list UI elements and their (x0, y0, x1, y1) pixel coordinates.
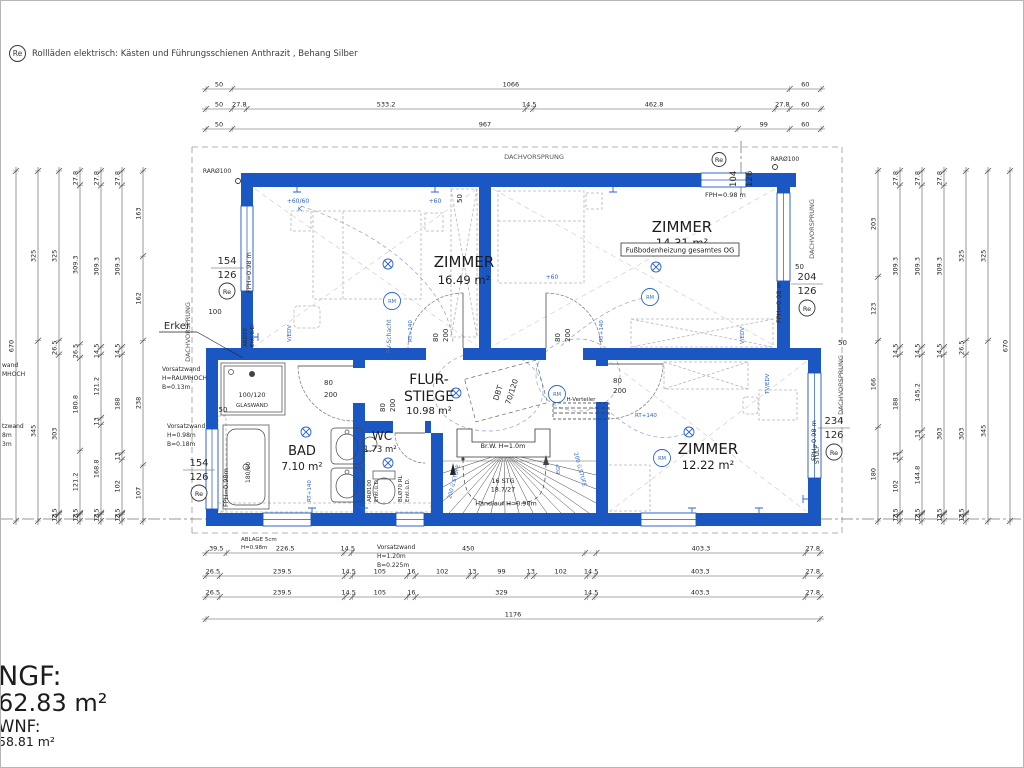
dimension-label: 345 (30, 425, 38, 437)
annotation-stufe: 200 ü.STUFE (447, 464, 462, 500)
dbt-box (465, 360, 548, 422)
dimension-label: 13 (468, 568, 476, 576)
annotation-frag2: MHOCH (2, 371, 25, 378)
dimension-label: 14.5 (522, 101, 536, 109)
annotation-w: 80 (613, 377, 622, 385)
dimension-label: 162 (135, 292, 143, 304)
annotation-rm: RM (553, 392, 561, 398)
dimension-label: 13 (914, 513, 922, 521)
annotation-rt140: RT+140 (307, 480, 313, 502)
annotation-fph: FPH=0.98 m (245, 252, 253, 293)
annotation-rm: RM (388, 299, 396, 305)
dimension-label: 303 (936, 428, 944, 440)
annotation-dachvorsprung: DACHVORSPRUNG (504, 153, 564, 161)
annotation-bl70_1: BLØ70 RL (397, 474, 404, 502)
annotation-vw1_1: Vorsatzwand (162, 366, 200, 373)
dimension-label: 188 (114, 398, 122, 410)
annotation-fph_m: FPH=0.98m (222, 468, 230, 507)
dimension-label: 14.5 (341, 568, 355, 576)
annotation-vw1_2: H=RAUMHOCH (162, 375, 207, 382)
dimension-label: 14.5 (914, 344, 922, 358)
dimension-label: 13 (51, 513, 59, 521)
dimension-chain: 27.8309.314.5188131022.513 (892, 167, 904, 525)
annotation-egf: EGF (556, 464, 562, 474)
dimension-label: 403.3 (691, 589, 710, 597)
annotation-hvert: H-Verteiler (566, 397, 596, 403)
dimension-label: 670 (8, 340, 16, 352)
annotation-entl: Entl.ü.D. (250, 323, 256, 347)
dimension-label: 1176 (505, 611, 522, 619)
dimension-label: 107 (135, 487, 143, 499)
dimension-label: 26.5 (206, 589, 220, 597)
room-bad-area: 7.10 m² (281, 461, 322, 473)
dimension-label: 309.3 (936, 257, 944, 276)
dimension-label: 50 (215, 81, 223, 89)
dimension-chain: 163162238107 (135, 167, 147, 525)
dimension-label: 13 (936, 513, 944, 521)
dimension-label: 27.8 (806, 568, 820, 576)
annotation-win_se_a: 234 (824, 416, 843, 427)
annotation-re: Re (715, 156, 723, 164)
annotation-rm: RM (658, 456, 666, 462)
annotation-re: Re (830, 449, 838, 457)
annotation-stulp: STULP (814, 445, 821, 464)
dimension-chain: 325345 (980, 167, 992, 525)
dimension-label: 309.3 (914, 257, 922, 276)
annotation-win_se_b: 126 (824, 430, 843, 441)
dimension-label: 14.5 (584, 589, 598, 597)
annotation-vedv: V/EDV (287, 325, 293, 342)
dimension-label: 60 (801, 81, 809, 89)
dimension-label: 99 (760, 121, 768, 129)
annotation-frag3: tzwand (2, 423, 24, 430)
annotation-rt140: RT+140 (599, 320, 605, 342)
wiring-curves (301, 206, 684, 437)
annotation-dbt: DBT (491, 384, 504, 402)
annotation-fph: FPH=0.98 m (705, 191, 746, 199)
dimension-label: 27.8 (914, 171, 922, 185)
annotation-win_top_b: 126 (745, 171, 755, 187)
dimension-label: 309.3 (114, 257, 122, 276)
annotation-h: 200 (389, 399, 397, 412)
dimension-label: 309.3 (892, 257, 900, 276)
dimension-label: 13 (527, 568, 535, 576)
ngf-label: NGF: (0, 663, 107, 691)
annotation-vw1_3: B=0.13m (162, 384, 191, 391)
dimension-label: 27.8 (93, 171, 101, 185)
annotation-win_top_a: 104 (729, 171, 739, 187)
dimension-label: 180.8 (72, 395, 80, 414)
room-zimmer-nw-name: ZIMMER (434, 253, 494, 271)
dimension-chain: 27.8309.326.5180.8121.22.513 (72, 167, 84, 525)
dimension-label: 27.8 (775, 101, 789, 109)
annotation-plus60: +60 (429, 198, 442, 205)
annotation-rm: RM (646, 295, 654, 301)
annotation-rar: RARØ100 (203, 168, 232, 175)
dimension-label: 105 (374, 589, 386, 597)
annotation-w: 80 (554, 333, 562, 342)
dimension-chain: 670 (8, 167, 20, 525)
annotation-win_sw_b: 126 (189, 472, 208, 483)
dimension-chain: 39.5226.514.5450403.327.8 (202, 545, 824, 557)
dimension-label: 102 (436, 568, 448, 576)
annotation-shower_size: 100/120 (238, 391, 265, 399)
annotation-w: 80 (379, 403, 387, 412)
dimension-label: 309.3 (93, 257, 101, 276)
dimension-label: 27.8 (114, 171, 122, 185)
stair-ratio-label: 18.7/27 (491, 486, 516, 494)
stair-handrail-label: Handlauf H=0.90m (475, 500, 536, 508)
annotation-frag4: 8m (2, 432, 12, 439)
wnf-value: 58.81 m² (0, 735, 107, 748)
dimension-label: 325 (51, 250, 59, 262)
dimension-label: 27.8 (72, 171, 80, 185)
room-bad-name: BAD (288, 444, 316, 459)
dimension-chain: 203123166180 (870, 167, 882, 525)
dimension-label: 403.3 (691, 568, 710, 576)
dimension-label: 188 (892, 398, 900, 410)
dimension-label: 27.8 (806, 589, 820, 597)
annotation-vedv: V/EDV (740, 327, 746, 344)
dimension-label: 168.8 (93, 460, 101, 479)
stair-parapet-label: Br.W. H=1.0m (481, 442, 526, 450)
area-summary: NGF: 62.83 m² WNF: 58.81 m² (0, 663, 107, 748)
dimension-label: 39.5 (209, 545, 223, 553)
annotation-tvedv: TV/EDV (765, 373, 771, 395)
annotation-vw3_2: H=1.20m (377, 553, 406, 560)
dimension-label: 13 (892, 452, 900, 460)
annotation-h: 200 (442, 329, 450, 342)
dimension-label: 203 (870, 218, 878, 230)
dimension-label: 27.8 (232, 101, 246, 109)
annotation-rt140: RT+140 (408, 320, 414, 342)
annotation-frag1: wand (2, 362, 18, 369)
annotation-dachvorsprung: DACHVORSPRUNG (837, 355, 845, 415)
dimension-chain: 50106660 (202, 81, 825, 93)
dimension-label: 303 (958, 428, 966, 440)
annotation-win_ne_a: 204 (797, 272, 816, 283)
room-wc-area: 1.73 m² (363, 445, 396, 455)
floorplan-page: Re Rollläden elektrisch: Kästen und Führ… (0, 0, 1024, 768)
dimension-label: 16 (407, 589, 415, 597)
dimension-label: 180 (870, 468, 878, 480)
dimension-label: 102 (555, 568, 567, 576)
dimension-label: 26.5 (51, 340, 59, 354)
dimension-label: 329 (495, 589, 507, 597)
dimension-chain: 5027.8533.214.5462.827.860 (202, 101, 825, 113)
room-flur-name1: FLUR- (409, 372, 449, 388)
room-wc-name: WC (372, 429, 392, 443)
dimension-label: 403.3 (692, 545, 711, 553)
annotation-frag5: 3m (2, 441, 12, 448)
dimension-label: 163 (135, 207, 143, 219)
stair-count-label: 16 STG (491, 477, 514, 485)
annotation-h: 200 (324, 391, 337, 399)
annotation-ar100_1: ARØ100 (366, 479, 373, 502)
annotation-d50: 50 (456, 194, 464, 203)
dimension-chain: 670 (1002, 167, 1014, 525)
dimension-label: 462.8 (645, 101, 664, 109)
dimension-label: 14.5 (114, 344, 122, 358)
dimension-label: 26.5 (206, 568, 220, 576)
dimension-label: 13 (914, 430, 922, 438)
annotation-re: Re (195, 490, 203, 498)
annotation-d50: 50 (219, 406, 228, 414)
annotation-entl: Entl.ü.D. (374, 478, 380, 502)
annotation-erker: Erker (164, 321, 191, 332)
annotation-d50: 50 (838, 339, 847, 347)
dimension-label: 121.2 (72, 473, 80, 492)
dimension-label: 13 (958, 513, 966, 521)
dimension-label: 123 (870, 303, 878, 315)
annotation-vw3_3: B=0.225m (377, 562, 409, 569)
dimension-label: 14.5 (93, 344, 101, 358)
annotation-win_sw_a: 154 (189, 458, 208, 469)
wnf-label: WNF: (0, 718, 107, 735)
annotation-ar70_1: ARØ70 (242, 328, 249, 347)
annotation-fph: FPH=0.98 m (775, 282, 783, 323)
annotation-win_nw_b: 126 (217, 270, 236, 281)
dimension-chain: 509679960 (202, 121, 825, 133)
dimension-chain: 32526.53032.513 (958, 167, 970, 525)
room-zimmer-ne-name: ZIMMER (652, 218, 712, 236)
label-leader-lines (183, 268, 850, 470)
dimension-label: 14.5 (584, 568, 598, 576)
room-flur-name2: STIEGE (404, 389, 454, 405)
room-zimmer-se-name: ZIMMER (678, 440, 738, 458)
dimension-label: 239.5 (273, 589, 292, 597)
fbh-note-text: Fußbodenheizung gesamtes OG (626, 247, 734, 255)
annotation-plus6060: +60/60 (287, 198, 310, 205)
annotation-h: 200 (613, 387, 626, 395)
dimension-label: 13 (93, 513, 101, 521)
dimension-chain: 1176 (202, 611, 824, 623)
dimension-label: 50 (215, 101, 223, 109)
annotation-vw2_2: H=0.98m (167, 432, 196, 439)
room-flur-area: 10.98 m² (406, 406, 452, 417)
dimension-label: 1066 (503, 81, 520, 89)
annotation-plus60: +60 (546, 274, 559, 281)
dimension-label: 345 (980, 425, 988, 437)
annotation-d100: 100 (208, 308, 221, 316)
annotation-rt140: RT+140 (635, 413, 657, 419)
dimension-label: 309.3 (72, 255, 80, 274)
dimension-chain: 27.8309.314.5188131022.513 (114, 167, 126, 525)
annotation-re: Re (803, 305, 811, 313)
dimension-label: 99 (497, 568, 505, 576)
annotation-d50: 50 (795, 263, 804, 271)
dimension-label: 13 (114, 452, 122, 460)
dimension-label: 13 (72, 514, 80, 522)
room-zimmer-se-area: 12.22 m² (682, 458, 734, 472)
dimension-chain: 27.8309.314.53032.513 (936, 167, 948, 525)
dimension-label: 27.8 (806, 545, 820, 553)
annotation-tub_size: 180/80 (245, 462, 252, 483)
dimension-label: 238 (135, 397, 143, 409)
annotation-w: 80 (324, 379, 333, 387)
annotation-dbt_size: 70/120 (503, 378, 520, 406)
dimension-label: 14.5 (936, 344, 944, 358)
dimension-label: 14.5 (341, 545, 355, 553)
dimension-label: 533.2 (377, 101, 396, 109)
dimension-label: 60 (801, 121, 809, 129)
dimension-label: 13 (892, 513, 900, 521)
dimension-label: 967 (479, 121, 491, 129)
annotation-rar: RARØ100 (771, 156, 800, 163)
ngf-value: 62.83 m² (0, 691, 107, 716)
dimension-label: 450 (462, 545, 474, 553)
room-zimmer-nw-area: 16.49 m² (438, 273, 490, 287)
dimension-label: 325 (30, 250, 38, 262)
dimension-label: 145.2 (914, 383, 922, 402)
annotation-w: 80 (432, 333, 440, 342)
annotation-win_nw_a: 154 (217, 256, 236, 267)
dimension-label: 26.5 (72, 344, 80, 358)
dimension-label: 14.5 (341, 589, 355, 597)
dimension-label: 50 (215, 121, 223, 129)
dimension-chain: 325345 (30, 167, 42, 525)
annotation-entl: Entl.ü.D. (405, 478, 411, 502)
annotation-re: Re (223, 288, 231, 296)
dimension-label: 26.5 (958, 340, 966, 354)
annotation-dachvorsprung: DACHVORSPRUNG (184, 302, 192, 362)
annotation-vw1_1: Vorsatzwand (377, 544, 415, 551)
dimension-label: 14.5 (892, 344, 900, 358)
dimension-label: 121.2 (93, 377, 101, 396)
dimension-label: 27.8 (892, 171, 900, 185)
dimension-label: 325 (958, 250, 966, 262)
dimension-chain: 26.5239.514.51051632914.5403.327.8 (202, 589, 824, 601)
dimension-label: 239.5 (273, 568, 292, 576)
dimension-label: 102 (114, 480, 122, 492)
annotation-vw1_1: Vorsatzwand (167, 423, 205, 430)
annotation-dachvorsprung: DACHVORSPRUNG (808, 199, 816, 259)
annotation-ablage_2: H=0.98m (241, 545, 267, 551)
dimension-label: 102 (892, 480, 900, 492)
dimension-label: 60 (801, 101, 809, 109)
dimension-label: 13 (93, 417, 101, 425)
annotation-h: 200 (564, 329, 572, 342)
dimension-label: 27.8 (936, 171, 944, 185)
dimension-label: 303 (51, 428, 59, 440)
dimension-label: 144.8 (914, 466, 922, 485)
annotation-pv: PV-Schacht (386, 319, 393, 353)
annotation-shower_glass: GLASWAND (236, 403, 268, 409)
annotation-vw2_3: B=0.18m (167, 441, 196, 448)
dimension-chain: 26.5239.514.51051610213991310214.5403.32… (202, 568, 824, 580)
dimension-label: 226.5 (276, 545, 295, 553)
dimension-label: 166 (870, 378, 878, 390)
dimension-label: 13 (114, 513, 122, 521)
dimension-label: 670 (1002, 340, 1010, 352)
annotation-k: K (298, 205, 303, 213)
floorplan-drawing: ZIMMER 16.49 m² ZIMMER 14.31 m² Fußboden… (1, 1, 1024, 768)
annotation-win_ne_b: 126 (797, 286, 816, 297)
dimension-chain: 27.8309.314.5121.213168.82.513 (93, 167, 105, 525)
dimension-chain: 32526.53032.513 (51, 167, 63, 525)
dimension-label: 325 (980, 250, 988, 262)
annotation-ablage_1: ABLAGE 5cm (241, 537, 277, 543)
dimension-chain: 27.8309.314.5145.213144.82.513 (914, 167, 926, 525)
